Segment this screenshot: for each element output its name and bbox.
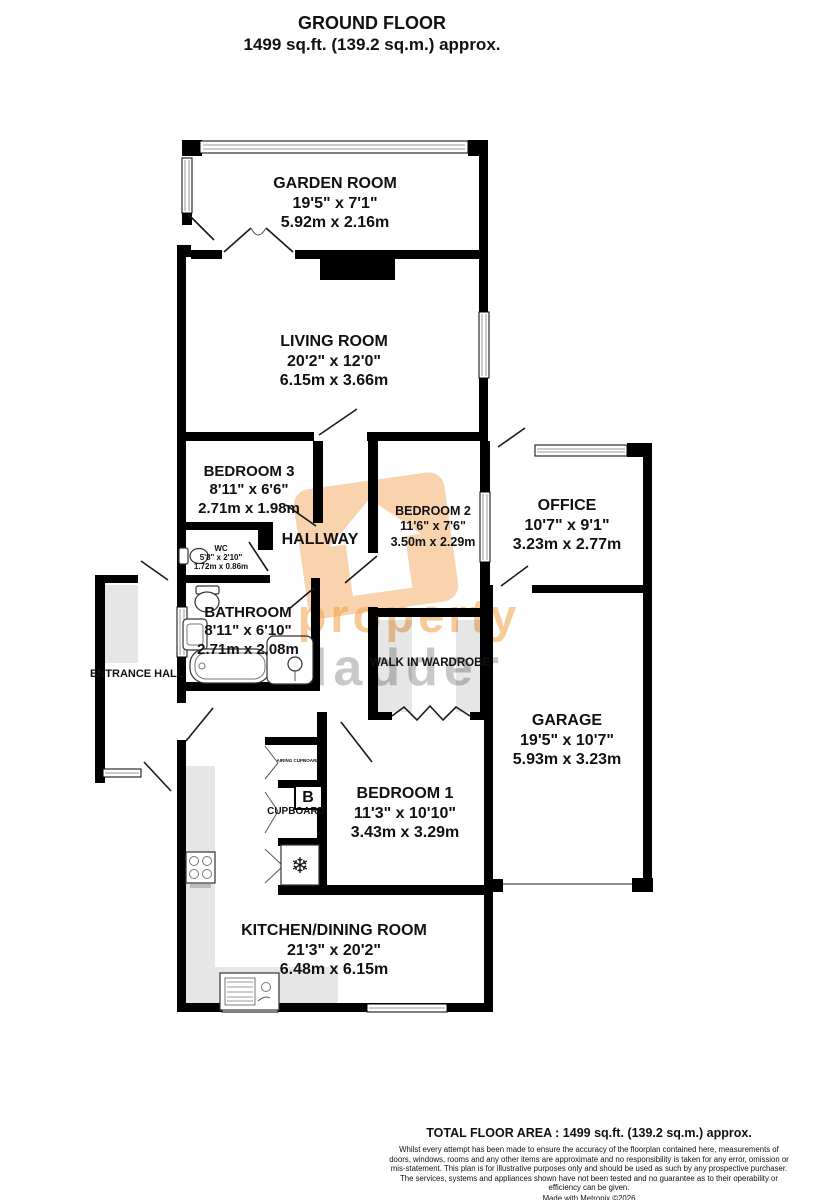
bedroom-2-label: BEDROOM 2 11'6" x 7'6" 3.50m x 2.29m xyxy=(391,504,476,550)
hob-icon xyxy=(186,852,215,888)
hallway-label: HALLWAY xyxy=(282,530,359,550)
walls xyxy=(95,140,653,1012)
bedroom-3-label: BEDROOM 3 8'11" x 6'6" 2.71m x 1.98m xyxy=(198,463,300,518)
metropix-credit: Made with Metropix ©2026 xyxy=(388,1194,790,1200)
cupboard-label: CUPBOARD xyxy=(267,806,325,818)
kitchen-dining-label: KITCHEN/DINING ROOM 21'3" x 20'2" 6.48m … xyxy=(241,921,427,980)
walk-in-wardrobe-label: WALK IN WARDROBE xyxy=(370,656,490,670)
office-label: OFFICE 10'7" x 9'1" 3.23m x 2.77m xyxy=(513,496,622,555)
garage-label: GARAGE 19'5" x 10'7" 5.93m x 3.23m xyxy=(513,711,622,770)
total-floor-area: TOTAL FLOOR AREA : 1499 sq.ft. (139.2 sq… xyxy=(388,1126,790,1140)
page-subtitle: 1499 sq.ft. (139.2 sq.m.) approx. xyxy=(244,35,501,55)
disclaimer-text: Whilst every attempt has been made to en… xyxy=(388,1145,790,1193)
wc-label: WC 5'8" x 2'10" 1.72m x 0.86m xyxy=(194,544,248,571)
boiler-symbol: B xyxy=(302,788,314,808)
living-room-label: LIVING ROOM 20'2" x 12'0" 6.15m x 3.66m xyxy=(280,332,389,391)
airing-cupboard-label: AIRING CUPBOARD xyxy=(276,758,319,763)
page-title: GROUND FLOOR xyxy=(298,13,446,34)
floorplan-page: GROUND FLOOR 1499 sq.ft. (139.2 sq.m.) a… xyxy=(0,0,824,1200)
folding-door xyxy=(392,706,470,720)
entrance-hall-label: ENTRANCE HALL xyxy=(90,668,184,680)
garden-room-label: GARDEN ROOM 19'5" x 7'1" 5.92m x 2.16m xyxy=(273,174,397,233)
footer: TOTAL FLOOR AREA : 1499 sq.ft. (139.2 sq… xyxy=(388,1126,790,1200)
floorplan-graphic xyxy=(0,0,824,1200)
bathroom-label: BATHROOM 8'11" x 6'10" 2.71m x 2.08m xyxy=(197,604,299,659)
freezer-snowflake-icon: ❄ xyxy=(291,853,309,880)
bedroom-1-label: BEDROOM 1 11'3" x 10'10" 3.43m x 3.29m xyxy=(351,784,460,843)
